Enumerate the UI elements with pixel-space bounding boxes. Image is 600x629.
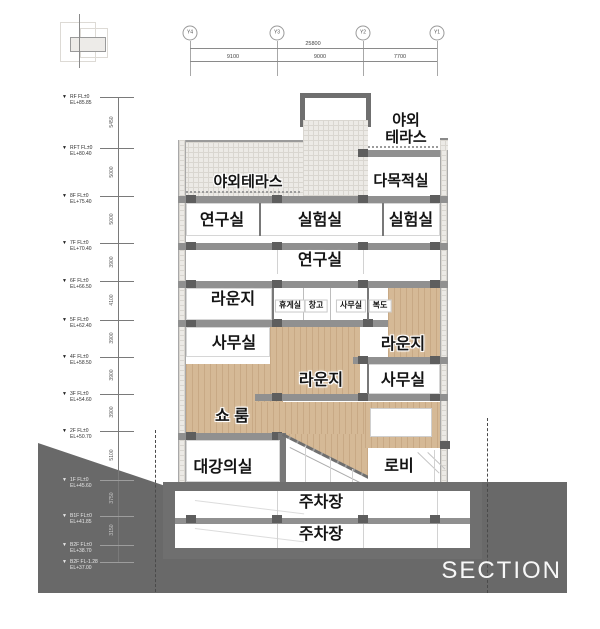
level-elevation: EL+80.40 — [70, 151, 92, 157]
column-line-6f-b — [363, 250, 364, 274]
column-cap — [430, 280, 440, 288]
grid-extension-y4 — [190, 41, 191, 76]
label-lounge-c: 라운지 — [299, 372, 343, 390]
level-triangle-icon: ▼ — [62, 542, 67, 548]
label-office-b: 사무실 — [212, 335, 256, 353]
foundation-slab — [163, 548, 482, 559]
grid-bubble-y2: Y2 — [356, 26, 371, 41]
level-marker-5f: ▼5F FL±0EL+62.40 — [70, 317, 92, 329]
slab-5f — [178, 320, 388, 327]
column-cap — [272, 515, 282, 523]
slab-6f — [178, 281, 448, 288]
partition-7f-b — [382, 203, 384, 236]
column-cap — [186, 432, 196, 440]
level-elevation: EL+58.50 — [70, 360, 92, 366]
terrain-left — [38, 443, 167, 593]
grid-bubble-y1: Y1 — [430, 26, 445, 41]
level-leader — [100, 480, 134, 481]
understair-line-b — [330, 458, 331, 482]
site-line-left — [155, 430, 156, 592]
label-lounge-b: 라운지 — [381, 336, 425, 354]
dim-line-total — [190, 48, 437, 49]
level-triangle-icon: ▼ — [62, 240, 67, 246]
vdim-2f-1f: 5100 — [109, 449, 115, 460]
grid-bubble-y4: Y4 — [183, 26, 198, 41]
basement-wall-right — [470, 482, 482, 557]
level-triangle-icon: ▼ — [62, 391, 67, 397]
vdim-rf-rft: 5450 — [109, 116, 115, 127]
level-triangle-icon: ▼ — [62, 513, 67, 519]
level-elevation: EL+41.85 — [70, 519, 92, 525]
vdim-4f-3f: 3900 — [109, 369, 115, 380]
dim-segment-2: 9000 — [314, 54, 326, 60]
label-office-a: 사무실 — [336, 300, 366, 313]
level-leader — [100, 243, 134, 244]
lobby-line — [434, 450, 435, 482]
level-leader — [100, 516, 134, 517]
level-marker-6f: ▼6F FL±0EL+66.50 — [70, 278, 92, 290]
level-leader — [100, 97, 134, 98]
grid-extension-y1 — [437, 41, 438, 76]
slab-8f — [178, 196, 448, 203]
level-leader — [100, 281, 134, 282]
wood-zone-2f-center — [255, 402, 365, 434]
grid-extension-y2 — [363, 41, 364, 76]
lobby-frame-opening — [370, 408, 432, 437]
level-elevation: EL+85.85 — [70, 100, 92, 106]
column-cap — [186, 242, 196, 250]
basement-wall-left — [163, 487, 175, 557]
label-office-c: 사무실 — [381, 372, 425, 390]
key-plan — [58, 14, 110, 68]
column-cap — [363, 319, 373, 327]
partition-3f — [367, 364, 369, 394]
grid-bubble-y4-label: Y4 — [187, 30, 193, 36]
level-triangle-icon: ▼ — [62, 145, 67, 151]
level-triangle-icon: ▼ — [62, 317, 67, 323]
level-marker-b2f: ▼B2F FL±0EL+38.70 — [70, 542, 92, 554]
level-elevation: EL+45.60 — [70, 483, 92, 489]
level-leader — [100, 545, 134, 546]
level-elevation: EL+66.50 — [70, 284, 92, 290]
column-cap — [186, 280, 196, 288]
level-leader — [100, 562, 134, 563]
label-parking-b2: 주차장 — [299, 526, 343, 544]
slab-7f — [178, 243, 448, 250]
partition-5f-a — [272, 288, 274, 320]
column-cap — [440, 441, 450, 449]
label-lab-a: 실험실 — [298, 212, 342, 230]
vdim-7f-6f: 3900 — [109, 256, 115, 267]
level-marker-8f: ▼8F FL±0EL+75.40 — [70, 193, 92, 205]
slab-1f-ground — [163, 482, 482, 491]
level-marker-rft: ▼RFT FL±0EL+80.40 — [70, 145, 92, 157]
level-triangle-icon: ▼ — [62, 193, 67, 199]
grid-extension-y3 — [277, 41, 278, 76]
level-elevation: EL+54.60 — [70, 397, 92, 403]
grid-bubble-y3: Y3 — [270, 26, 285, 41]
column-cap — [358, 356, 368, 364]
label-storage: 창고 — [305, 300, 328, 313]
level-leader — [100, 394, 134, 395]
label-lecture: 대강의실 — [194, 459, 253, 477]
column-cap — [358, 195, 368, 203]
label-corridor: 복도 — [369, 300, 392, 313]
label-research-b: 연구실 — [298, 252, 342, 270]
grid-bubble-y3-label: Y3 — [274, 30, 280, 36]
vdim-6f-5f: 4100 — [109, 294, 115, 305]
level-triangle-icon: ▼ — [62, 94, 67, 100]
level-elevation: EL+70.40 — [70, 246, 92, 252]
label-multipurpose: 다목적실 — [373, 174, 428, 191]
column-cap — [358, 242, 368, 250]
column-cap — [272, 280, 282, 288]
grid-bubble-y1-label: Y1 — [434, 30, 440, 36]
column-cap — [430, 515, 440, 523]
vdim-5f-4f: 3900 — [109, 332, 115, 343]
label-lounge-a: 라운지 — [211, 291, 255, 309]
section-title: SECTION — [441, 557, 562, 585]
level-marker-b1f: ▼B1F FL±0EL+41.85 — [70, 513, 92, 525]
grid-bubble-y2-label: Y2 — [360, 30, 366, 36]
key-plan-cut-line — [79, 14, 80, 68]
level-leader — [100, 196, 134, 197]
level-elevation: EL+62.40 — [70, 323, 92, 329]
terrace-right-slab — [358, 150, 448, 157]
column-cap — [430, 356, 440, 364]
penthouse-interior — [305, 98, 366, 120]
level-leader — [100, 320, 134, 321]
column-cap — [186, 195, 196, 203]
terrace-right-cap — [358, 149, 368, 157]
section-drawing: Y4 Y3 Y2 Y1 25800 9100 9000 7700 — [0, 0, 600, 629]
penthouse-lower-wall — [303, 120, 368, 196]
level-marker-3f: ▼3F FL±0EL+54.60 — [70, 391, 92, 403]
column-cap — [272, 319, 282, 327]
column-line-6f-a — [277, 250, 278, 274]
column-cap — [358, 515, 368, 523]
level-marker-2f: ▼2F FL±0EL+50.70 — [70, 428, 92, 440]
vdim-1f-b1f: 3750 — [109, 492, 115, 503]
dim-total: 25800 — [305, 41, 320, 47]
key-plan-core — [70, 37, 106, 52]
understair-line-a — [305, 446, 306, 482]
label-terrace-left: 야외테라스 — [213, 175, 282, 192]
level-triangle-icon: ▼ — [62, 354, 67, 360]
dim-segment-3: 7700 — [394, 54, 406, 60]
column-cap — [358, 393, 368, 401]
label-lobby: 로비 — [384, 458, 413, 476]
level-elevation: EL+37.00 — [70, 565, 98, 571]
vdim-b1f-b2f: 3150 — [109, 524, 115, 535]
level-elevation: EL+50.70 — [70, 434, 92, 440]
level-leader — [100, 357, 134, 358]
level-leader — [100, 431, 134, 432]
slab-3f-right — [255, 394, 448, 401]
label-parking-b1: 주차장 — [299, 494, 343, 512]
slab-b1f — [175, 518, 470, 524]
partition-7f-a — [259, 203, 261, 236]
column-cap — [186, 319, 196, 327]
column-cap — [430, 195, 440, 203]
column-cap — [272, 195, 282, 203]
level-leader — [100, 148, 134, 149]
vdim-8f-7f: 5000 — [109, 213, 115, 224]
column-cap — [186, 515, 196, 523]
vdim-rft-8f: 5000 — [109, 166, 115, 177]
label-rest: 휴게실 — [275, 300, 305, 313]
column-cap — [358, 280, 368, 288]
column-cap — [272, 393, 282, 401]
level-elevation: EL+75.40 — [70, 199, 92, 205]
vdim-3f-2f: 3900 — [109, 406, 115, 417]
column-cap — [430, 393, 440, 401]
label-lab-b: 실험실 — [389, 212, 433, 230]
label-terrace-upper: 야외 테라스 — [385, 113, 426, 147]
level-triangle-icon: ▼ — [62, 278, 67, 284]
level-triangle-icon: ▼ — [62, 559, 67, 565]
level-marker-b2f-low: ▼B2F FL-1.28EL+37.00 — [70, 559, 98, 571]
dim-line-segments — [190, 61, 437, 62]
level-marker-rf: ▼RF FL±0EL+85.85 — [70, 94, 92, 106]
label-showroom: 쇼 룸 — [215, 408, 249, 426]
level-triangle-icon: ▼ — [62, 428, 67, 434]
column-cap — [430, 242, 440, 250]
level-triangle-icon: ▼ — [62, 477, 67, 483]
partition-5f-c — [330, 288, 331, 320]
level-elevation: EL+38.70 — [70, 548, 92, 554]
level-marker-4f: ▼4F FL±0EL+58.50 — [70, 354, 92, 366]
label-research-a: 연구실 — [200, 212, 244, 230]
vertical-dim-line — [118, 97, 119, 562]
level-marker-7f: ▼7F FL±0EL+70.40 — [70, 240, 92, 252]
level-marker-1f: ▼1F FL±0EL+45.60 — [70, 477, 92, 489]
column-cap — [272, 242, 282, 250]
dim-segment-1: 9100 — [227, 54, 239, 60]
understair-line-c — [352, 469, 353, 482]
